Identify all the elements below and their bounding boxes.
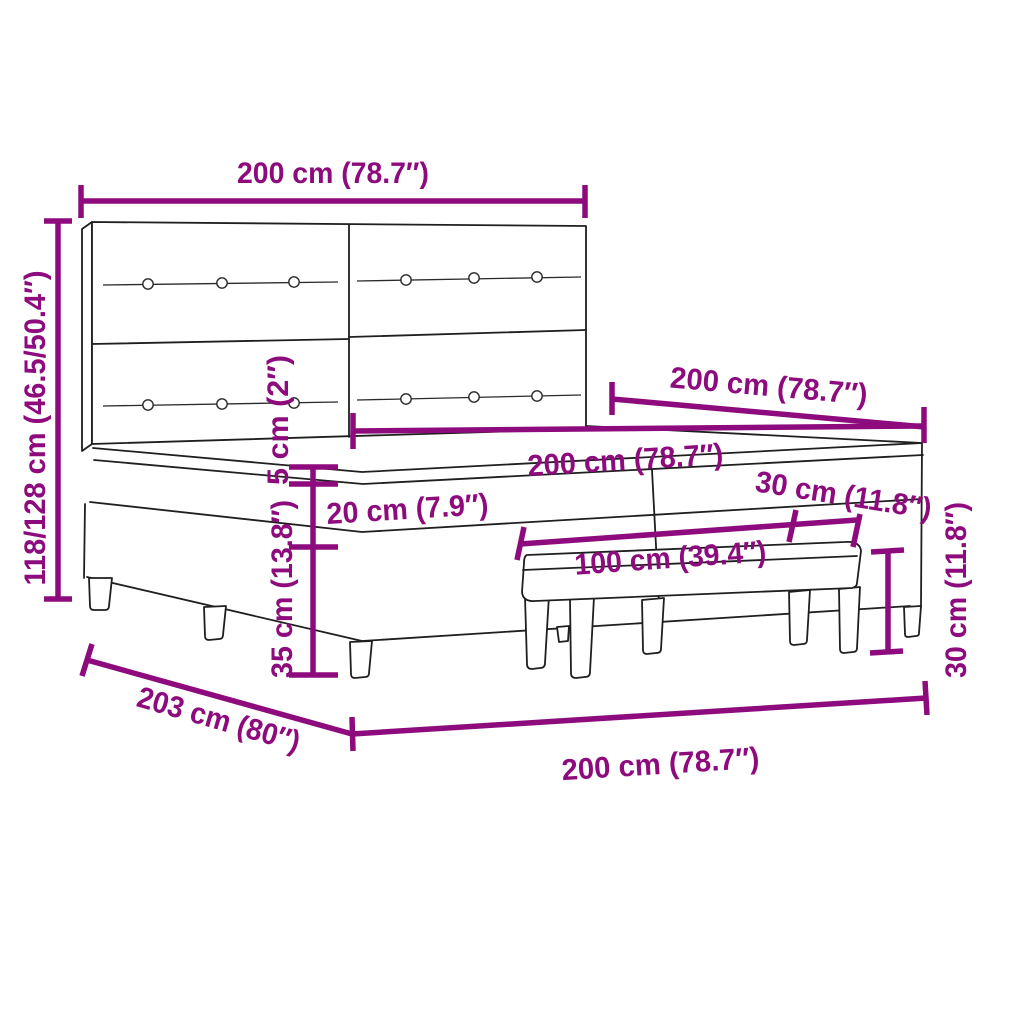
dim-bed-depth-label: 203 cm (80″) [133, 681, 304, 759]
bench-leg [525, 595, 549, 669]
headboard-side-panel [82, 222, 92, 451]
dim-bed-width: 200 cm (78.7″) [352, 681, 927, 787]
dim-headboard-width: 200 cm (78.7″) [81, 157, 585, 218]
dim-pillowtop-label: 5 cm (2″) [262, 355, 295, 485]
diagram-canvas: 200 cm (78.7″) 118/128 cm (46.5/50.4″) 2… [0, 0, 1024, 1024]
bench-leg [570, 597, 594, 678]
dim-bench-depth-label: 30 cm (11.8″) [753, 465, 934, 525]
dim-mattress-width-label: 200 cm (78.7″) [527, 438, 725, 483]
bed-dimension-diagram: 200 cm (78.7″) 118/128 cm (46.5/50.4″) 2… [0, 0, 1024, 1024]
mattress-top-edge [93, 443, 922, 472]
dim-bench-height-label: 30 cm (11.8″) [940, 502, 973, 678]
dim-bed-width-label: 200 cm (78.7″) [561, 742, 761, 787]
bench-leg [839, 587, 860, 653]
box-left-corner [84, 504, 85, 578]
bench-leg [642, 598, 664, 654]
dim-overall-height: 118/128 cm (46.5/50.4″) [19, 221, 72, 599]
dim-base-height-label: 35 cm (13.8″) [266, 500, 299, 678]
bench-rear-leg-stub [557, 626, 569, 642]
dim-overall-height-label: 118/128 cm (46.5/50.4″) [19, 271, 52, 586]
dim-bed-length: 200 cm (78.7″) [612, 361, 925, 427]
dim-bench-length-depth: 100 cm (39.4″) 30 cm (11.8″) [517, 465, 934, 581]
dim-headboard-width-label: 200 cm (78.7″) [237, 157, 429, 190]
bench-leg [789, 590, 810, 645]
dim-mattress-thickness-label: 20 cm (7.9″) [326, 488, 490, 531]
box-right-corner [921, 443, 922, 607]
